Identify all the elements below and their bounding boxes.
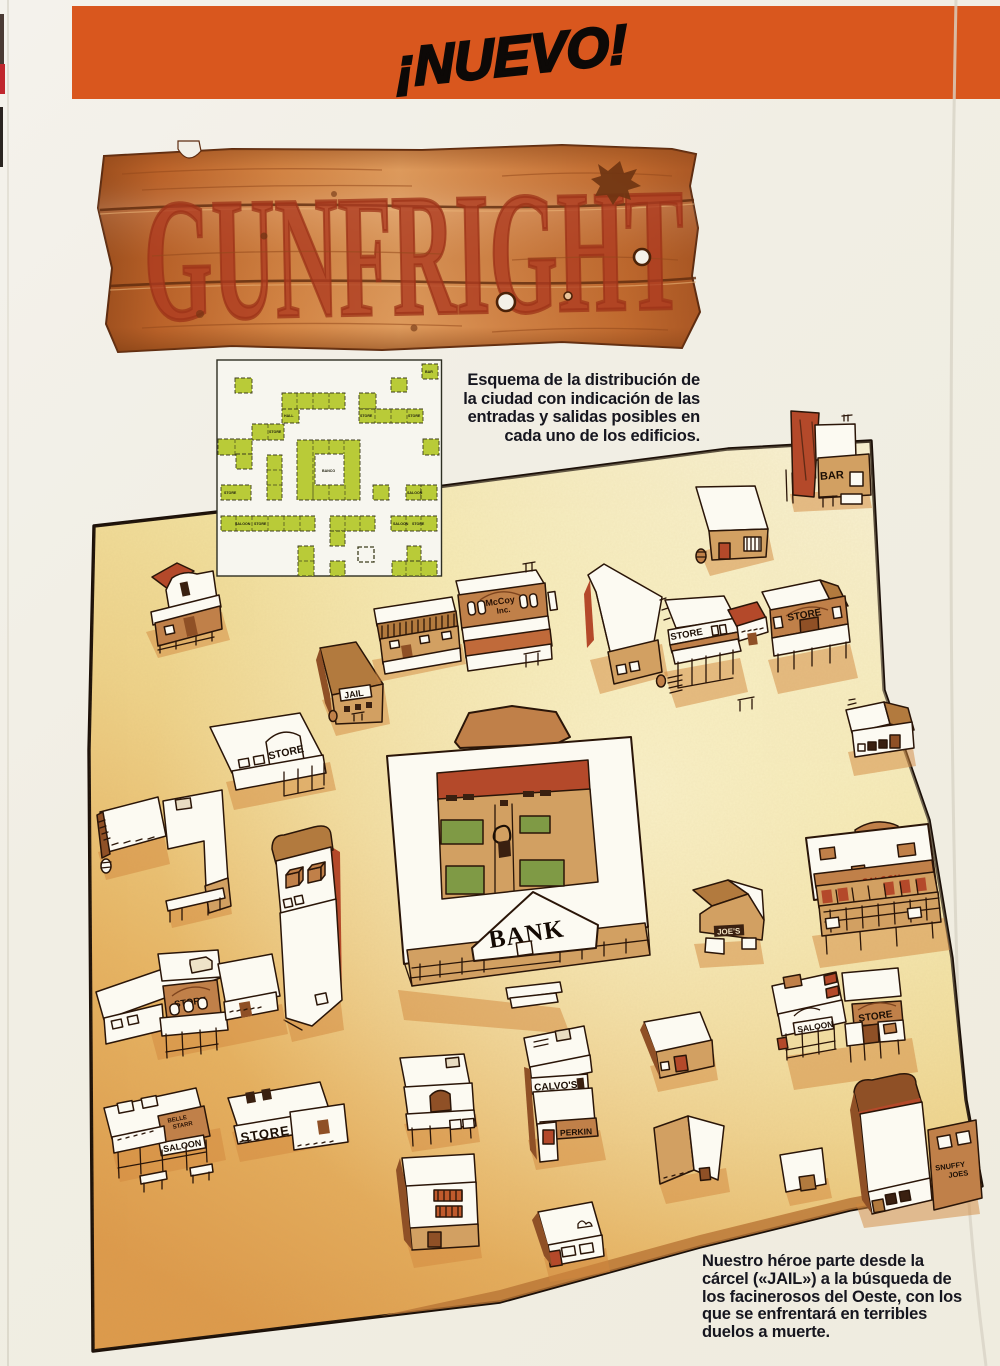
svg-text:HALL: HALL xyxy=(284,414,294,418)
svg-text:SALOON: SALOON xyxy=(235,522,251,526)
svg-text:STORE: STORE xyxy=(412,522,425,526)
svg-text:JOE'S: JOE'S xyxy=(717,926,741,936)
svg-text:STORE: STORE xyxy=(408,414,421,418)
svg-text:Inc.: Inc. xyxy=(496,605,511,616)
svg-text:STORE: STORE xyxy=(360,414,373,418)
svg-text:STORE: STORE xyxy=(254,522,267,526)
svg-text:PERKIN: PERKIN xyxy=(560,1126,593,1138)
svg-text:STORE: STORE xyxy=(269,430,282,434)
svg-text:BAR: BAR xyxy=(820,469,845,483)
svg-text:STORE: STORE xyxy=(224,491,237,495)
svg-text:SALOON: SALOON xyxy=(393,522,409,526)
svg-text:SALOON: SALOON xyxy=(407,491,423,495)
svg-text:BANCO: BANCO xyxy=(322,469,335,473)
